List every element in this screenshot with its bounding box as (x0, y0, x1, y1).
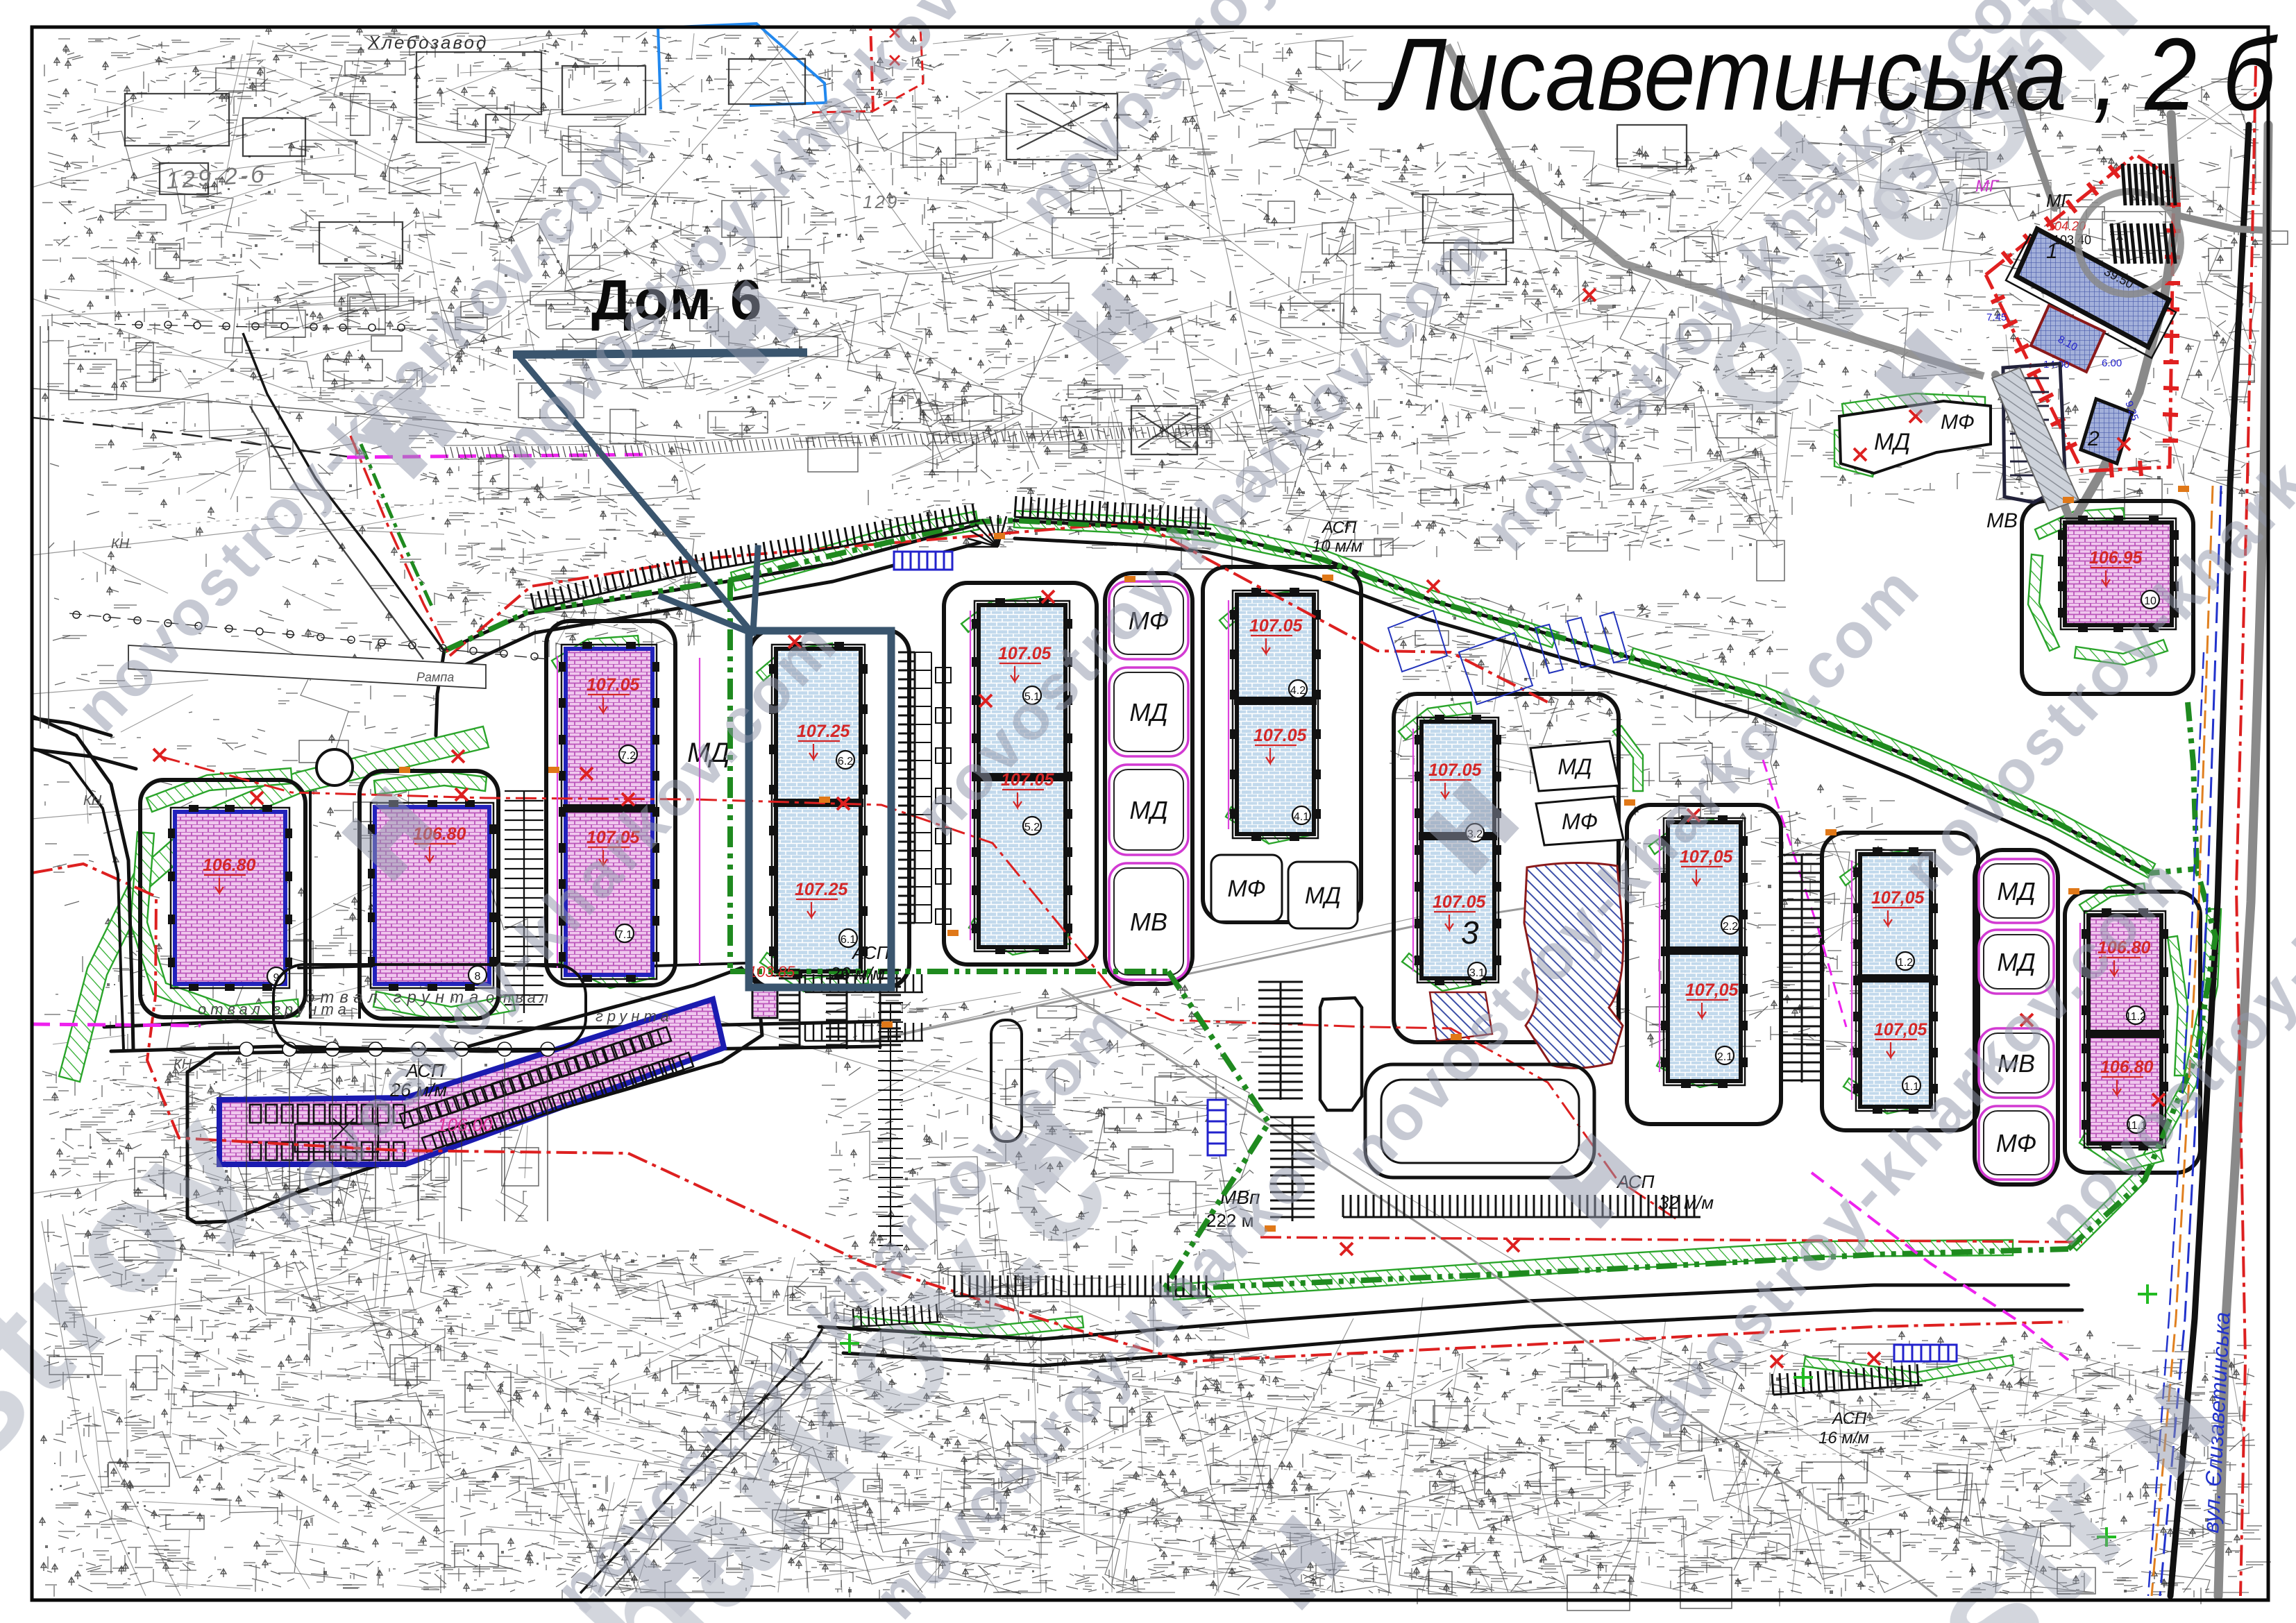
svg-text:МФ: МФ (1562, 809, 1598, 834)
svg-text:10 м/м: 10 м/м (1312, 537, 1362, 556)
svg-text:МВ: МВ (1130, 908, 1167, 936)
svg-text:КН: КН (111, 536, 130, 552)
svg-text:106.00: 106.00 (437, 1114, 493, 1135)
svg-text:16 м/м: 16 м/м (1818, 1429, 1869, 1447)
svg-text:129-: 129- (863, 192, 907, 212)
svg-text:3: 3 (1461, 915, 1479, 951)
svg-text:МД: МД (1129, 796, 1167, 824)
svg-text:МФ: МФ (1996, 1129, 2037, 1157)
svg-text:1.2: 1.2 (1898, 957, 1913, 969)
svg-text:АСП: АСП (1321, 518, 1357, 537)
svg-text:КН: КН (174, 1057, 192, 1072)
svg-text:АСП: АСП (851, 942, 890, 963)
svg-text:107,05: 107,05 (1685, 980, 1739, 1000)
svg-text:МФ: МФ (1941, 411, 1975, 434)
svg-text:КН: КН (83, 793, 102, 808)
svg-text:6.2: 6.2 (838, 756, 853, 767)
svg-text:3.1: 3.1 (1469, 967, 1485, 979)
svg-text:Рампа: Рампа (416, 670, 454, 684)
svg-text:АСП: АСП (1831, 1409, 1867, 1428)
svg-text:МД: МД (1305, 883, 1341, 909)
svg-text:107,05: 107,05 (1871, 888, 1925, 908)
svg-text:грунта: грунта (596, 1008, 673, 1025)
svg-text:107.25: 107.25 (795, 880, 849, 899)
svg-text:106.95: 106.95 (2089, 548, 2143, 568)
svg-text:МД: МД (1874, 429, 1910, 455)
svg-text:103.85: 103.85 (748, 963, 795, 980)
svg-text:2.1: 2.1 (1717, 1051, 1732, 1063)
svg-text:7.1: 7.1 (617, 929, 632, 941)
svg-text:4.1: 4.1 (1294, 811, 1309, 823)
svg-text:МГ: МГ (2046, 190, 2073, 211)
svg-text:МД: МД (1997, 877, 2035, 906)
svg-text:107.05: 107.05 (586, 675, 641, 695)
svg-text:107,05: 107,05 (1874, 1020, 1928, 1039)
svg-text:МД: МД (1129, 698, 1167, 726)
svg-text:отвал грунта: отвал грунта (198, 1001, 351, 1018)
svg-text:МД: МД (1558, 754, 1592, 779)
svg-text:5.2: 5.2 (1024, 822, 1040, 833)
svg-text:107.25: 107.25 (797, 722, 851, 741)
svg-text:107.05: 107.05 (1428, 760, 1483, 780)
svg-text:106.80: 106.80 (203, 856, 256, 875)
svg-text:107.05: 107.05 (1249, 616, 1303, 636)
svg-text:Хлебозавод: Хлебозавод (367, 32, 488, 53)
svg-text:Лисаветинська , 2 б: Лисаветинська , 2 б (1378, 17, 2279, 132)
svg-text:2: 2 (2087, 427, 2100, 450)
svg-text:11.2: 11.2 (2125, 1011, 2146, 1023)
svg-text:6.00: 6.00 (2102, 357, 2122, 369)
svg-text:МФ: МФ (1227, 876, 1265, 902)
svg-text:МВ: МВ (1986, 509, 2018, 532)
svg-text:7.2: 7.2 (621, 750, 636, 762)
svg-text:7.45: 7.45 (1986, 312, 2007, 323)
svg-text:106.80: 106.80 (2100, 1057, 2154, 1077)
svg-text:103.40: 103.40 (2053, 233, 2091, 247)
svg-text:4.2: 4.2 (1290, 685, 1306, 697)
svg-text:32 м/м: 32 м/м (1659, 1192, 1714, 1213)
svg-text:107.05: 107.05 (1433, 892, 1487, 912)
svg-text:2.2: 2.2 (1723, 921, 1738, 933)
svg-text:107.05: 107.05 (1253, 726, 1308, 745)
